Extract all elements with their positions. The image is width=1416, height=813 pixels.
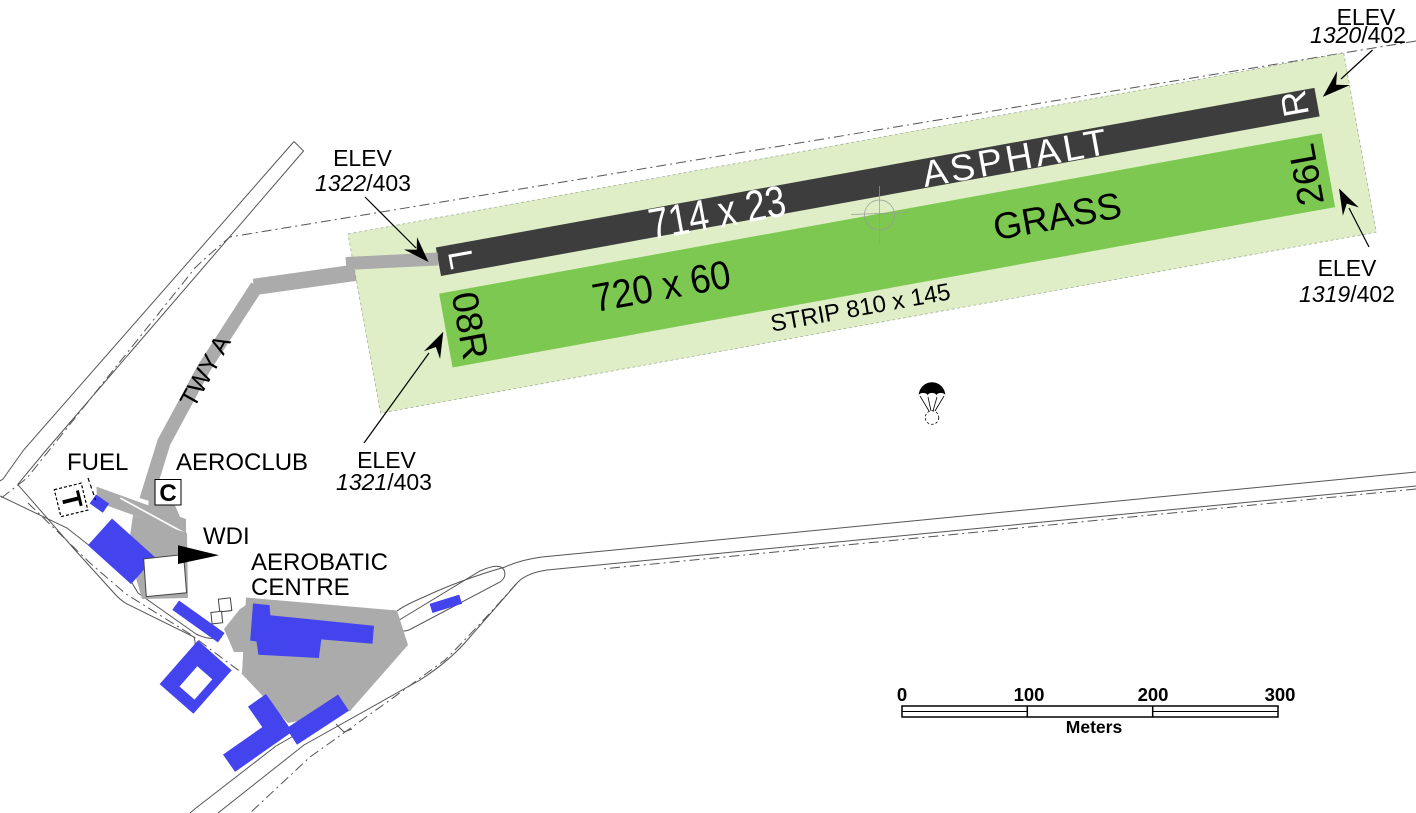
svg-text:WDI: WDI — [203, 523, 250, 550]
svg-text:200: 200 — [1138, 684, 1169, 705]
svg-text:300: 300 — [1265, 684, 1296, 705]
svg-text:AEROBATIC: AEROBATIC — [251, 549, 388, 576]
svg-text:ELEV: ELEV — [1318, 255, 1377, 281]
svg-text:1319/402: 1319/402 — [1299, 281, 1395, 307]
svg-text:C: C — [159, 480, 176, 507]
svg-text:ELEV: ELEV — [333, 145, 392, 171]
svg-text:FUEL: FUEL — [67, 449, 128, 476]
svg-text:100: 100 — [1014, 684, 1045, 705]
svg-text:AEROCLUB: AEROCLUB — [176, 449, 308, 476]
svg-text:1322/403: 1322/403 — [315, 170, 411, 196]
svg-text:CENTRE: CENTRE — [251, 574, 350, 601]
svg-text:0: 0 — [897, 684, 907, 705]
svg-text:Meters: Meters — [1066, 717, 1123, 737]
svg-text:1321/403: 1321/403 — [336, 469, 432, 495]
svg-text:1320/402: 1320/402 — [1310, 22, 1406, 48]
